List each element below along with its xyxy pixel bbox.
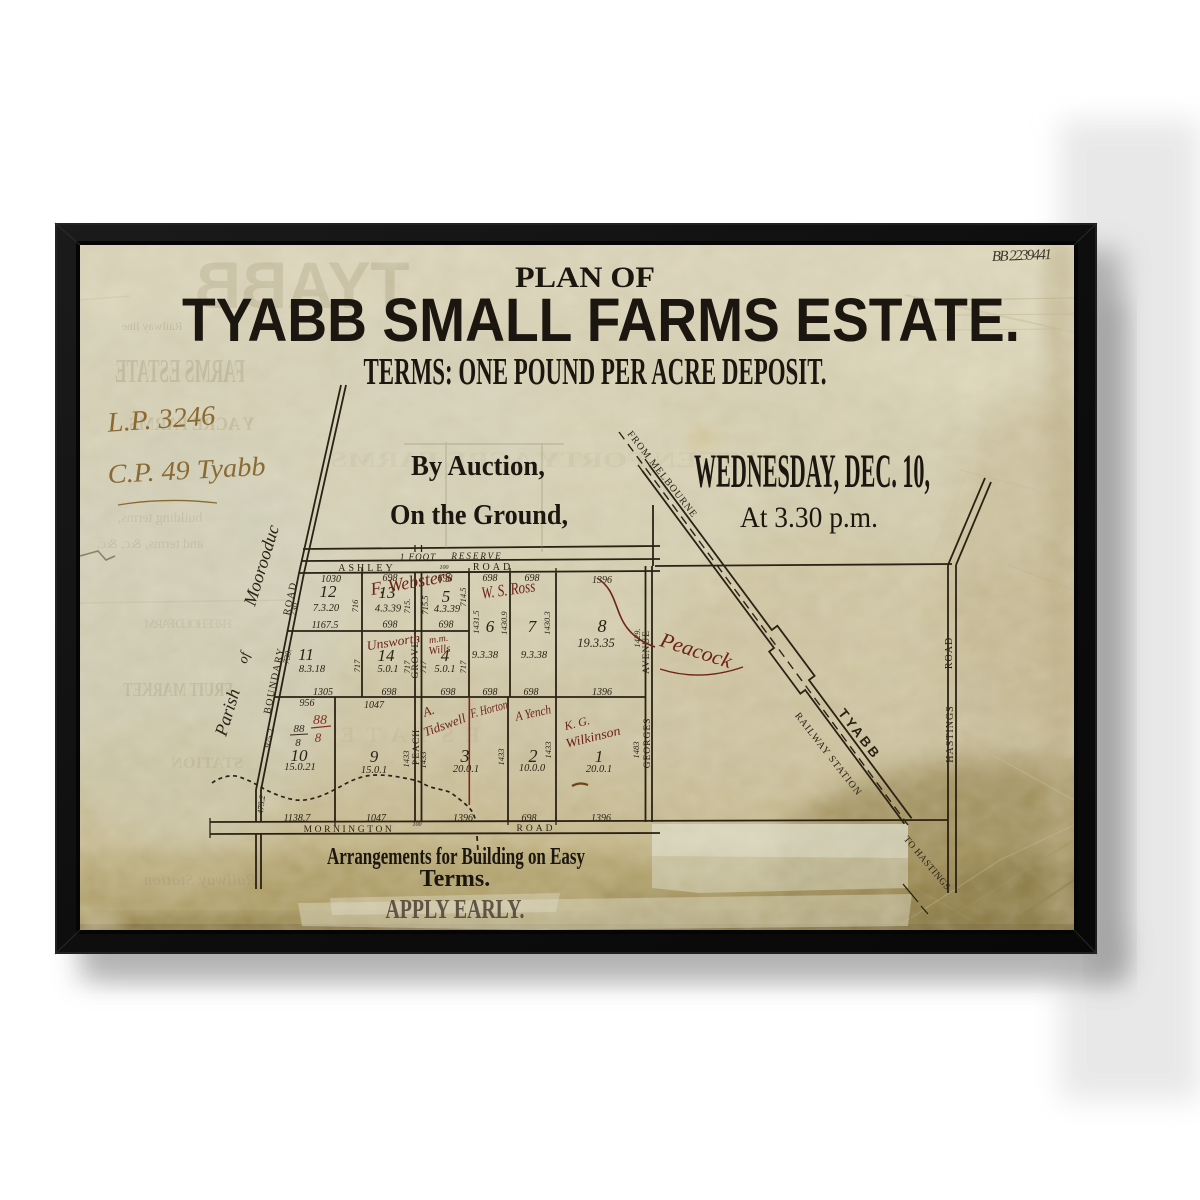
svg-text:20.0.1: 20.0.1: [453, 764, 479, 775]
svg-text:At 3.30 p.m.: At 3.30 p.m.: [740, 501, 878, 534]
svg-text:20.0.1: 20.0.1: [586, 764, 612, 775]
svg-text:698: 698: [524, 687, 539, 698]
svg-text:1430.3: 1430.3: [542, 611, 552, 634]
svg-text:On the Ground,: On the Ground,: [390, 500, 568, 531]
svg-text:475.2: 475.2: [255, 794, 267, 815]
svg-text:1483: 1483: [631, 742, 641, 759]
svg-text:698: 698: [383, 620, 398, 631]
svg-text:1430.9: 1430.9: [499, 611, 509, 635]
svg-text:HASTINGS: HASTINGS: [945, 705, 956, 762]
svg-text:1047: 1047: [364, 700, 385, 711]
svg-text:1433: 1433: [401, 751, 411, 768]
svg-text:88: 88: [294, 723, 306, 735]
svg-text:1030: 1030: [321, 574, 341, 585]
svg-text:TERMS: ONE POUND PER ACRE DEPO: TERMS: ONE POUND PER ACRE DEPOSIT.: [364, 351, 827, 393]
svg-text:1433: 1433: [543, 742, 553, 759]
svg-text:1047: 1047: [366, 813, 387, 824]
svg-text:ROAD: ROAD: [473, 562, 513, 573]
svg-text:15.0.1: 15.0.1: [361, 765, 387, 776]
svg-text:698: 698: [382, 687, 397, 698]
svg-text:717: 717: [402, 660, 412, 674]
svg-text:1138.7: 1138.7: [284, 813, 312, 824]
svg-text:9.3.38: 9.3.38: [521, 650, 548, 661]
svg-text:8: 8: [598, 616, 607, 636]
svg-text:3: 3: [460, 746, 470, 766]
svg-text:100: 100: [413, 822, 422, 828]
svg-text:MORNINGTON: MORNINGTON: [304, 825, 395, 835]
svg-text:APPLY EARLY.: APPLY EARLY.: [386, 894, 525, 924]
svg-text:716: 716: [350, 599, 360, 613]
svg-text:1396: 1396: [592, 687, 612, 698]
svg-text:698: 698: [441, 687, 456, 698]
svg-text:BB 2239441: BB 2239441: [992, 247, 1053, 265]
svg-text:ROAD: ROAD: [944, 637, 955, 669]
svg-text:715.5: 715.5: [420, 595, 430, 614]
svg-text:19.3.35: 19.3.35: [577, 636, 615, 650]
svg-text:1396: 1396: [453, 813, 473, 824]
svg-text:8: 8: [315, 730, 322, 745]
svg-text:1 FOOT: 1 FOOT: [400, 552, 436, 562]
svg-text:1396: 1396: [591, 813, 611, 824]
svg-text:1433: 1433: [418, 752, 428, 769]
svg-text:698: 698: [522, 813, 537, 824]
svg-text:698: 698: [439, 620, 454, 631]
svg-text:1305: 1305: [313, 687, 333, 698]
svg-text:9.3.38: 9.3.38: [472, 650, 499, 661]
svg-text:4.3.39: 4.3.39: [434, 604, 461, 615]
svg-text:7.3.20: 7.3.20: [313, 603, 340, 614]
svg-text:5.0.1: 5.0.1: [378, 664, 399, 675]
svg-text:AVENUE: AVENUE: [642, 630, 652, 674]
svg-text:1396: 1396: [592, 575, 612, 586]
svg-text:By Auction,: By Auction,: [411, 451, 545, 482]
svg-text:717: 717: [418, 660, 428, 674]
svg-text:8: 8: [295, 737, 301, 749]
svg-text:1167.5: 1167.5: [312, 620, 339, 631]
svg-text:ROAD: ROAD: [517, 824, 556, 834]
svg-text:9: 9: [370, 747, 379, 766]
svg-text:698: 698: [483, 687, 498, 698]
svg-text:5.0.1: 5.0.1: [435, 664, 456, 675]
svg-text:717: 717: [352, 659, 362, 673]
svg-text:GEORGES: GEORGES: [643, 718, 653, 769]
svg-text:956: 956: [300, 698, 315, 709]
svg-text:10.0.0: 10.0.0: [519, 763, 546, 774]
svg-text:1431.5: 1431.5: [471, 610, 481, 633]
svg-text:88: 88: [313, 713, 327, 728]
svg-text:1433: 1433: [496, 749, 506, 766]
svg-text:6: 6: [486, 617, 495, 636]
svg-text:RESERVE: RESERVE: [450, 551, 502, 561]
svg-text:714.5: 714.5: [458, 587, 468, 606]
svg-text:11: 11: [298, 645, 314, 664]
svg-text:4.3.39: 4.3.39: [375, 604, 402, 615]
svg-text:715.: 715.: [402, 599, 412, 614]
svg-text:15.0.21: 15.0.21: [284, 762, 316, 773]
svg-text:Terms.: Terms.: [420, 866, 490, 892]
svg-text:8.3.18: 8.3.18: [299, 664, 326, 675]
svg-text:WEDNESDAY, DEC. 10,: WEDNESDAY, DEC. 10,: [694, 445, 930, 498]
svg-text:717: 717: [458, 660, 468, 674]
svg-text:TYABB SMALL FARMS ESTATE.: TYABB SMALL FARMS ESTATE.: [182, 286, 1020, 354]
